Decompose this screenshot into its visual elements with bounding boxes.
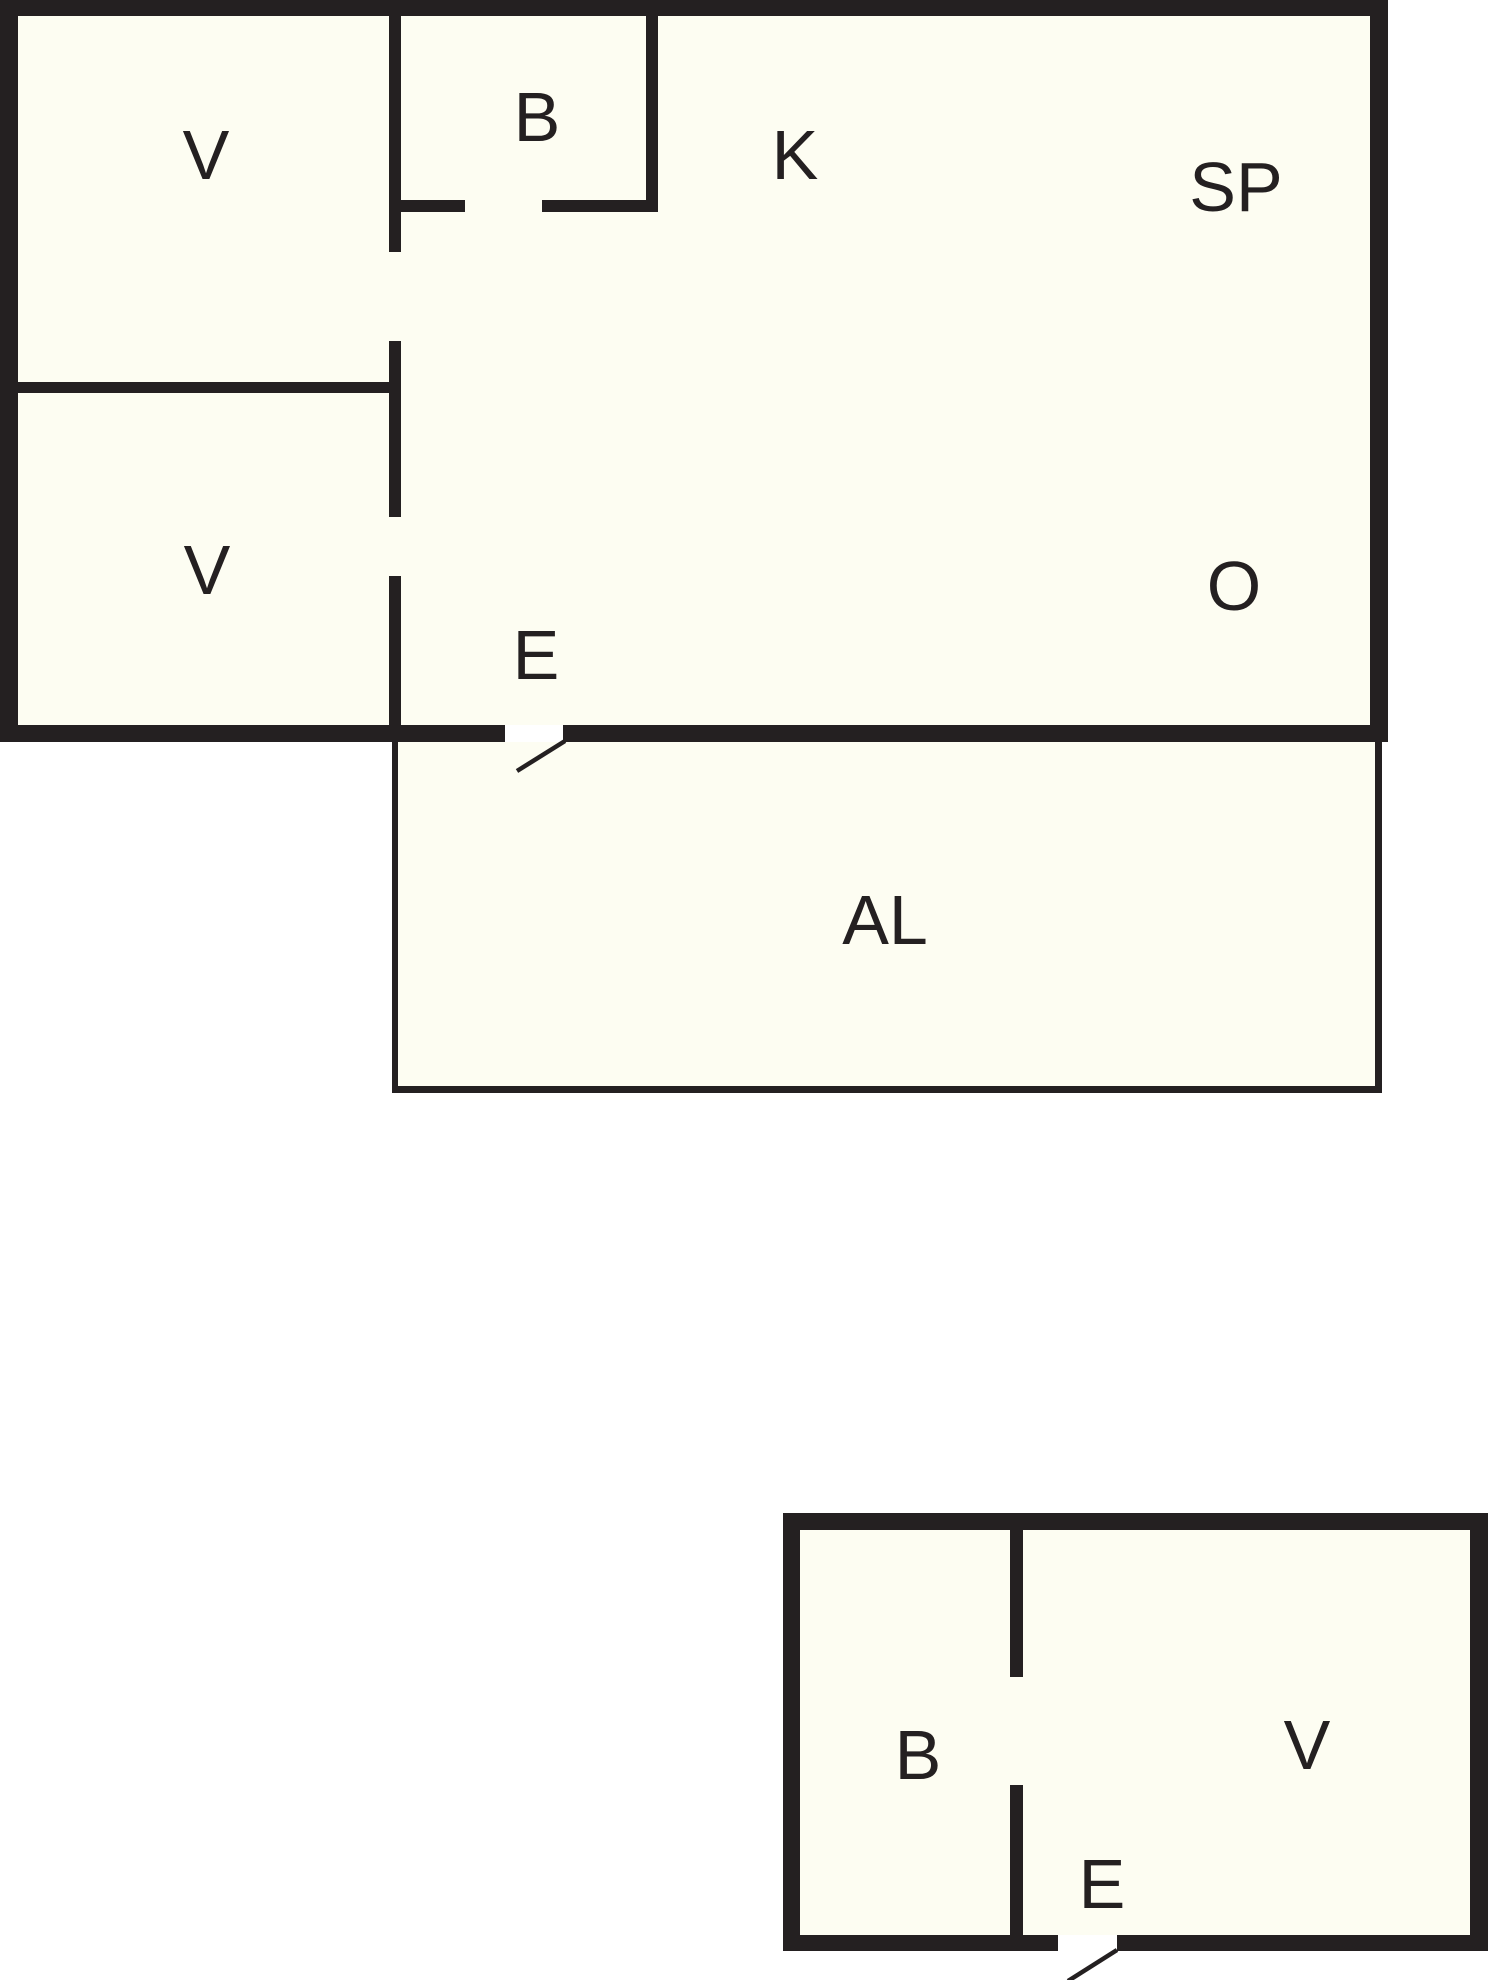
room-o-label: O: [1207, 551, 1261, 621]
area-al-label: AL: [842, 885, 928, 955]
annex-entrance-door-swing: [1068, 1950, 1117, 1980]
room-b-main-label: B: [514, 82, 561, 152]
floor-plan: VBKSPVEOALBVE: [0, 0, 1488, 1980]
room-b-annex-label: B: [895, 1720, 942, 1790]
room-v-bottom-left-label: V: [184, 535, 231, 605]
door-swing-overlay: [0, 0, 1488, 1980]
main-entrance-door-swing: [517, 741, 565, 771]
room-v-top-left-label: V: [183, 120, 230, 190]
room-sp-label: SP: [1189, 152, 1282, 222]
room-v-annex-label: V: [1284, 1710, 1331, 1780]
entrance-annex-label: E: [1079, 1849, 1126, 1919]
room-k-label: K: [772, 120, 819, 190]
entrance-main-label: E: [513, 620, 560, 690]
